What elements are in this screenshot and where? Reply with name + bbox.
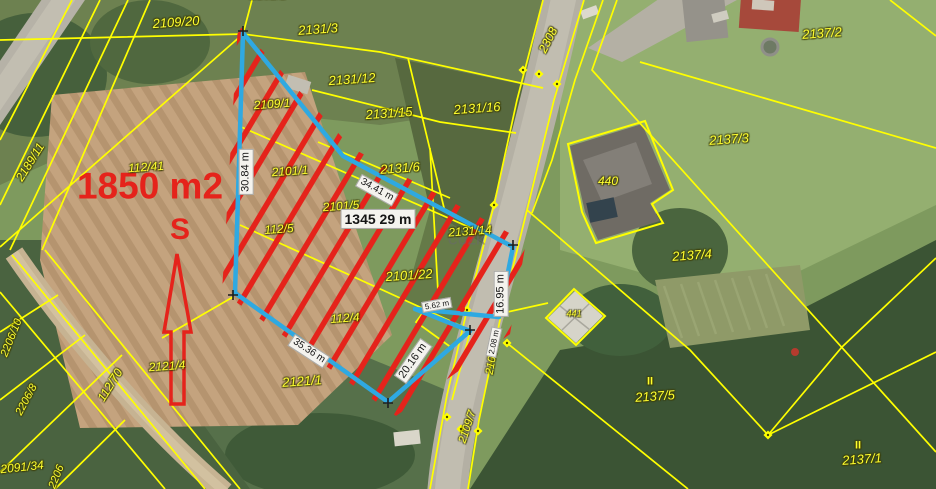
parcel-number-label: 2137/2 [802, 25, 843, 41]
parcel-number-label: 112/70 [95, 367, 124, 404]
parcel-number-label: 2131/6 [380, 160, 421, 176]
parcel-number-label: 2101/1 [271, 164, 308, 179]
parcel-number-label: 2131/12 [328, 71, 376, 87]
parcel-number-label: 2131/16 [453, 100, 501, 116]
parcel-number-label: 2091/34 [0, 459, 44, 475]
parcel-number-label: 2206 [47, 464, 66, 489]
cadastral-map-view[interactable]: 1850 m2 S ČÚZK 2109/202131/12131/32131/1… [0, 0, 936, 489]
parcel-number-label: 2137/4 [672, 247, 713, 263]
parcel-number-label: 2189/11 [14, 141, 47, 183]
parcel-number-label: 2131/14 [448, 224, 492, 239]
parcel-number-label: 112/5 [264, 222, 294, 236]
parcel-number-label: 2131/15 [365, 105, 413, 121]
parcel-number-label: 2109/20 [152, 14, 200, 30]
map-labels-overlay: 1850 m2 S ČÚZK 2109/202131/12131/32131/1… [0, 0, 936, 489]
distance-label: 34.41 m [355, 174, 398, 206]
parcel-number-label: 2109/1 [253, 97, 290, 112]
parcel-number-label: II [647, 377, 653, 388]
parcel-number-label: 2101/22 [385, 267, 433, 283]
north-indicator-label: S [170, 215, 190, 245]
parcel-number-label: 2121/1 [282, 373, 323, 389]
parcel-number-label: 2131/3 [298, 21, 339, 37]
parcel-number-label: 2137/5 [635, 388, 676, 404]
parcel-number-label: 2206/10 [0, 318, 25, 359]
distance-label: 35.36 m [288, 334, 331, 368]
parcel-number-label: 2206/8 [14, 383, 40, 418]
parcel-number-label: 441 [566, 310, 581, 319]
parcel-number-label: 112/41 [128, 160, 165, 174]
parcel-number-label: II [855, 441, 861, 452]
parcel-number-label: 2137/3 [709, 131, 750, 147]
parcel-number-label: 2109/7 [458, 409, 479, 444]
parcel-number-label: 2137/1 [842, 451, 883, 467]
parcel-number-label: 2131/1 [250, 0, 287, 1]
parcel-number-label: 112/4 [330, 311, 360, 325]
distance-label: 20.16 m [394, 338, 432, 384]
distance-label: 30.84 m [239, 149, 254, 195]
parcel-number-label: 2121/4 [148, 359, 185, 374]
distance-label: 5.62 m [421, 297, 453, 313]
parcel-number-label: 2308 [537, 25, 560, 54]
distance-label: 16.95 m [494, 271, 509, 317]
parcel-number-label: 440 [598, 175, 618, 187]
distance-label: 1345 29 m [341, 209, 416, 229]
